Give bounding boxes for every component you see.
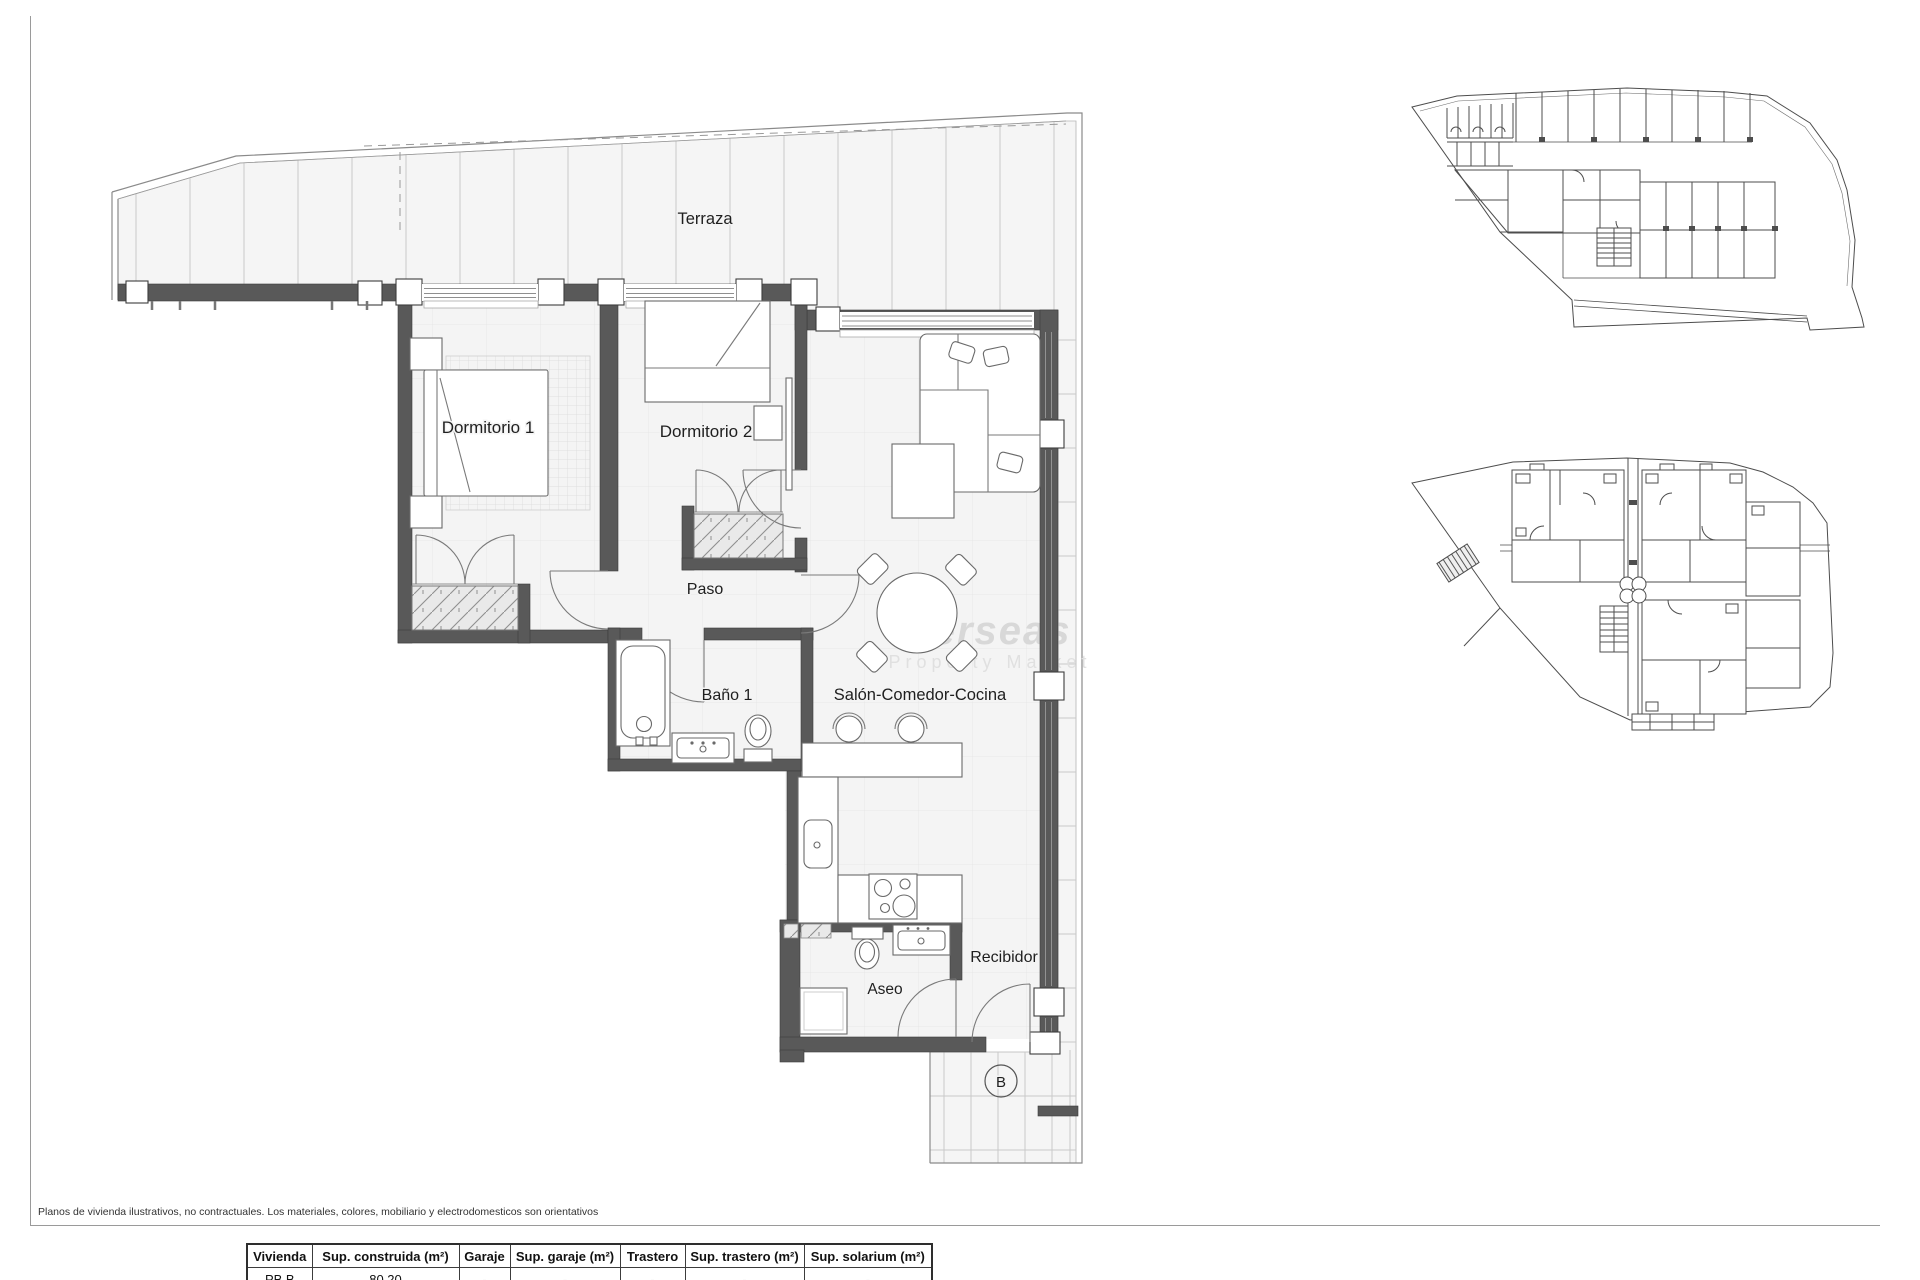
unit-letter: B [996, 1074, 1006, 1091]
site-key-plan [1412, 458, 1833, 730]
garage-plan [1412, 88, 1864, 330]
label-salon: Salón-Comedor-Cocina [834, 686, 1007, 704]
unit-top-right [1642, 470, 1746, 582]
nightstand [410, 496, 442, 528]
col-garaje: Garaje [459, 1244, 510, 1268]
col-sup-construida: Sup. construida (m²) [312, 1244, 459, 1268]
label-recibidor: Recibidor [970, 949, 1038, 966]
label-aseo: Aseo [867, 981, 902, 998]
table-row: PB B 80.20 - - - - - [247, 1268, 932, 1280]
table-header-row: Vivienda Sup. construida (m²) Garaje Sup… [247, 1244, 932, 1268]
coffee-table [892, 444, 954, 518]
main-floor-plan: verseas Property Market [112, 108, 1092, 1163]
label-dormitorio2: Dormitorio 2 [660, 422, 753, 441]
col-vivienda: Vivienda [247, 1244, 312, 1268]
cell-sup-construida: 80.20 [312, 1268, 459, 1280]
toilet [744, 749, 772, 762]
col-sup-solarium: Sup. solarium (m²) [804, 1244, 932, 1268]
sheet-left-border [30, 16, 31, 1226]
surface-table: Vivienda Sup. construida (m²) Garaje Sup… [246, 1243, 933, 1280]
aseo-niches [784, 924, 831, 938]
cell-garaje: - [459, 1268, 510, 1280]
col-sup-trastero: Sup. trastero (m²) [685, 1244, 804, 1268]
washer [800, 988, 847, 1034]
label-terraza: Terraza [677, 210, 733, 228]
ramp [1437, 544, 1479, 582]
garage-top-stalls [1447, 89, 1753, 166]
cell-trastero: - [620, 1268, 685, 1280]
shelf [786, 378, 792, 490]
label-paso: Paso [687, 581, 724, 598]
unit-bottom-right [1642, 600, 1800, 714]
toilet [852, 927, 883, 939]
label-bano1: Baño 1 [702, 687, 753, 704]
cell-vivienda: PB B [247, 1268, 312, 1280]
col-trastero: Trastero [620, 1244, 685, 1268]
plan-drawing: verseas Property Market [0, 0, 1920, 1280]
floor-plan-sheet: verseas Property Market [0, 0, 1920, 1280]
cell-sup-trastero: - [685, 1268, 804, 1280]
unit-right-wing [1746, 502, 1800, 596]
nightstand [754, 406, 782, 440]
watermark-line2: Property Market [888, 652, 1091, 672]
col-sup-garaje: Sup. garaje (m²) [510, 1244, 620, 1268]
garage-core [1455, 170, 1640, 266]
bar-counter [802, 743, 962, 777]
label-dormitorio1: Dormitorio 1 [442, 418, 535, 437]
nightstand [410, 338, 442, 370]
sheet-bottom-border [30, 1225, 1880, 1226]
cell-sup-garaje: - [510, 1268, 620, 1280]
disclaimer-text: Planos de vivienda ilustrativos, no cont… [38, 1206, 598, 1218]
cell-sup-solarium: - [804, 1268, 932, 1280]
unit-top-left [1512, 470, 1624, 582]
